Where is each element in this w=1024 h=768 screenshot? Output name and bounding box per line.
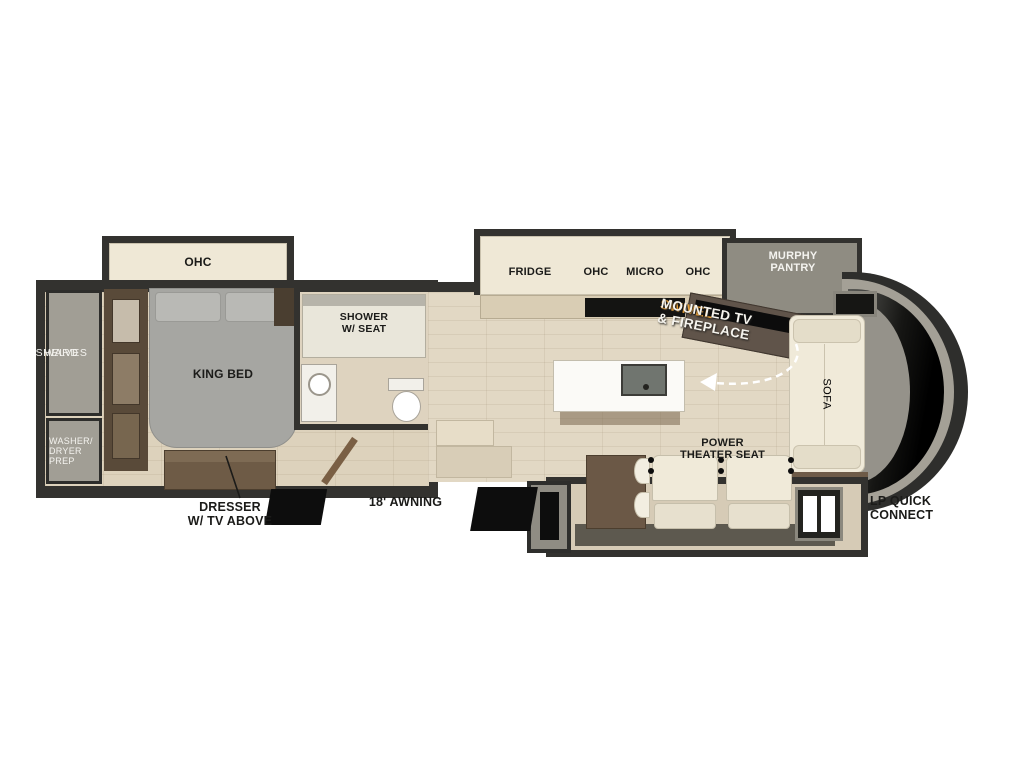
door-side-window	[795, 487, 843, 541]
shelves-column: SHELVES	[49, 293, 74, 413]
seat-button-icon	[718, 468, 724, 474]
theater-armrest	[634, 492, 650, 518]
dresser-top	[165, 451, 275, 462]
bathroom-sink-vanity	[301, 364, 337, 422]
shower-back-wall	[303, 295, 425, 306]
bedroom-corner-cabinet	[274, 288, 296, 326]
power-theater-seat-label: POWER THEATER SEAT	[640, 437, 805, 462]
washer-dryer-prep-label: WASHER/ DRYER PREP	[49, 436, 99, 466]
wardrobe-compartment: WARD SHELVES	[46, 290, 102, 416]
washer-dryer-prep-compartment: WASHER/ DRYER PREP	[46, 418, 102, 484]
faucet-icon	[643, 384, 649, 390]
wardrobe-door-panel	[112, 353, 140, 405]
theater-seat-cushion	[654, 503, 716, 529]
hall-step	[436, 446, 512, 478]
front-corner-window	[833, 291, 877, 317]
theater-seat-cushion	[728, 503, 790, 529]
shelves-label: SHELVES	[36, 347, 88, 359]
sink-bowl	[308, 373, 331, 396]
sofa-label: SOFA	[821, 378, 833, 409]
kitchen-ohc-right-label: OHC	[685, 266, 710, 278]
awning-label: 18' AWNING	[338, 495, 473, 509]
murphy-pantry-label: MURPHY PANTRY	[730, 250, 856, 275]
micro-label: MICRO	[626, 266, 664, 278]
seat-button-icon	[788, 468, 794, 474]
king-bed-label: KING BED	[149, 368, 297, 381]
toilet-tank	[388, 378, 424, 391]
island-base-shadow	[560, 411, 680, 425]
wardrobe-mirror-panel	[112, 299, 140, 343]
dresser-tv-label: DRESSER W/ TV ABOVE	[155, 500, 305, 528]
toilet-bowl	[392, 391, 421, 422]
kitchen-ohc-left-label: OHC	[583, 266, 608, 278]
bedroom-wardrobe-unit	[104, 289, 148, 471]
rv-floorplan-diagram: OHC WARD SHELVES WASHER/ DRYER PREP KING…	[0, 0, 1024, 768]
lp-quick-connect-label: LP QUICK CONNECT	[870, 494, 980, 522]
entry-step	[470, 487, 538, 531]
bedroom-ohc-label: OHC	[102, 256, 294, 269]
dresser	[164, 450, 276, 490]
shower-label: SHOWER W/ SEAT	[302, 312, 426, 336]
pillow	[155, 292, 221, 322]
wardrobe-door-panel	[112, 413, 140, 459]
fridge-label: FRIDGE	[509, 266, 552, 278]
window-pane	[821, 496, 835, 532]
window-pane	[803, 496, 817, 532]
seat-button-icon	[648, 468, 654, 474]
entry-door	[540, 492, 559, 540]
island-sink	[621, 364, 667, 396]
hall-step	[436, 420, 494, 446]
